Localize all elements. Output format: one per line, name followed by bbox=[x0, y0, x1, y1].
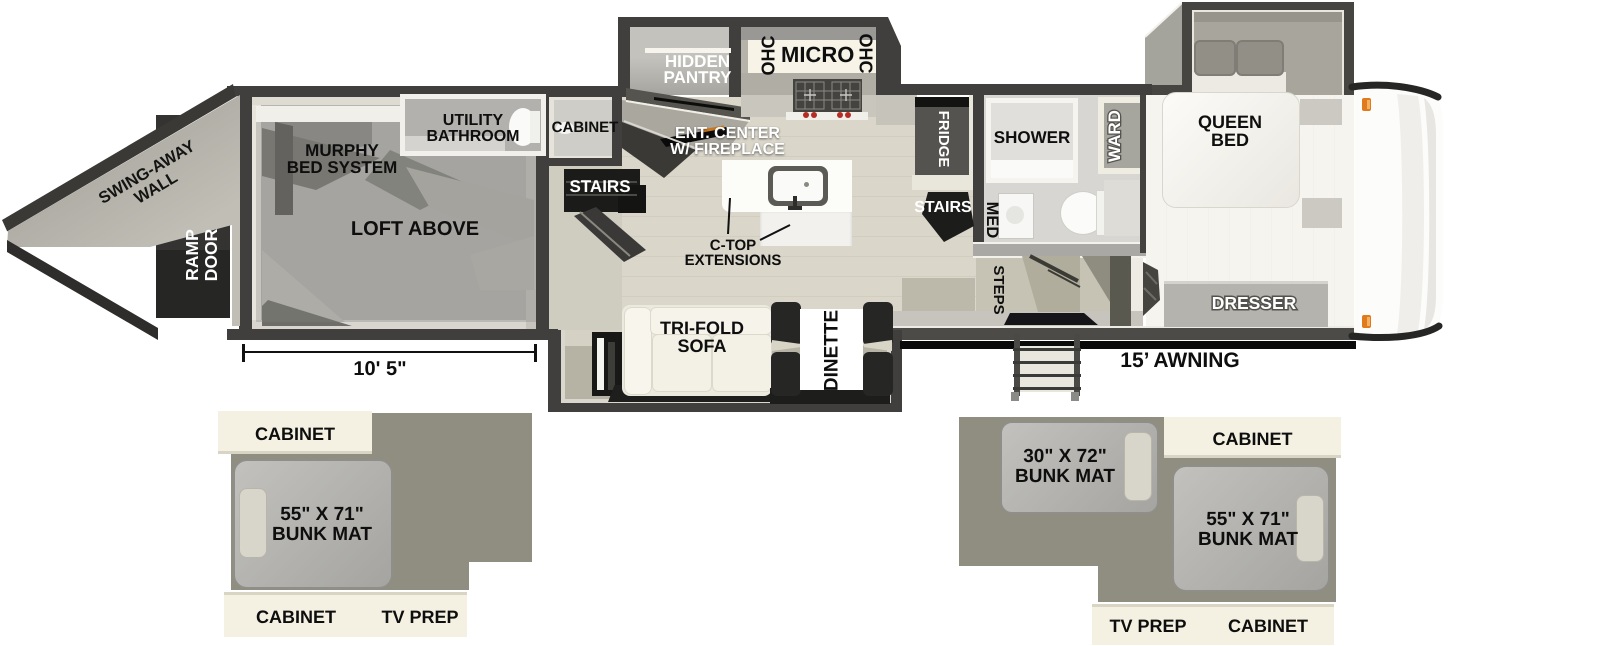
svg-text:DRESSER: DRESSER bbox=[1212, 293, 1297, 313]
